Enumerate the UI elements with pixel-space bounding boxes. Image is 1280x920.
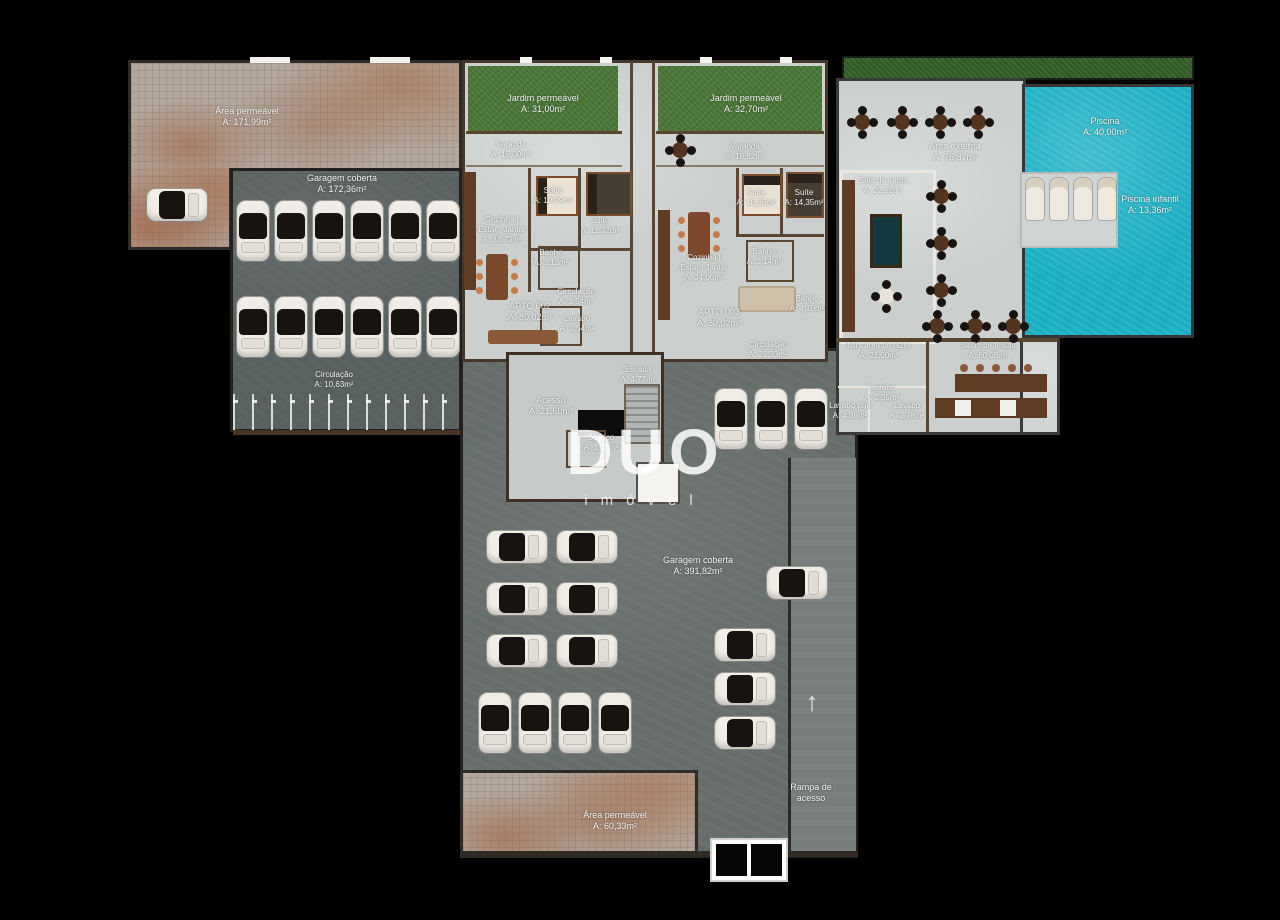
label-suite2-003: Suíte A: 14,35m² xyxy=(784,188,823,208)
bed xyxy=(586,172,632,216)
wall-pillar xyxy=(520,57,532,63)
car xyxy=(556,530,618,564)
wall-pillar xyxy=(600,57,612,63)
bar-stool xyxy=(1024,364,1032,372)
car xyxy=(486,634,548,668)
round-table xyxy=(967,318,983,334)
bar-stool xyxy=(992,364,1000,372)
sink xyxy=(955,400,971,416)
sink xyxy=(1000,400,1016,416)
region-hedge xyxy=(842,56,1194,80)
round-table xyxy=(1005,318,1021,334)
label-jardim-002: Jardim permeável A: 31,00m² xyxy=(507,93,579,116)
pool-lounger xyxy=(1026,178,1044,220)
label-lavabo-002: Lavabo A: 1,54m² xyxy=(560,314,595,334)
label-suite1-002: Suíte A: 10,09m² xyxy=(533,186,572,206)
car xyxy=(556,634,618,668)
label-area-externa: Área externa A: 76,87m² xyxy=(929,141,981,164)
car xyxy=(714,716,776,750)
stall-number-marks xyxy=(233,400,460,403)
round-table xyxy=(878,288,894,304)
label-circulacao-002: Circulação A: 3,54m² xyxy=(557,287,595,307)
car xyxy=(146,188,208,222)
car xyxy=(426,200,460,262)
round-table xyxy=(933,282,949,298)
round-table xyxy=(894,114,910,130)
label-piscina: Piscina A: 40,00m² xyxy=(1083,116,1127,139)
round-table xyxy=(672,142,688,158)
wall-pillar xyxy=(780,57,792,63)
kitchen-counter xyxy=(464,172,476,290)
floor-plan-canvas: ↑ Área permeável A: 171,99m² Garagem cob… xyxy=(0,0,1280,920)
wall-pillar xyxy=(370,57,410,63)
label-suite2-002: Suíte A: 11,32m² xyxy=(581,216,620,236)
round-table xyxy=(933,188,949,204)
round-table xyxy=(970,114,986,130)
car xyxy=(312,296,346,358)
bar-stool xyxy=(1008,364,1016,372)
pool-lounger xyxy=(1074,178,1092,220)
pool-lounger xyxy=(1050,178,1068,220)
car xyxy=(714,672,776,706)
region-area-permeavel-2 xyxy=(460,770,698,858)
car xyxy=(274,296,308,358)
car xyxy=(236,296,270,358)
cabinet-counter xyxy=(935,398,1047,418)
label-servico: Serviço A: 1,35m² xyxy=(584,433,619,453)
region-area-permeavel-1 xyxy=(128,60,462,172)
sofa xyxy=(738,286,796,312)
label-garagem-2: Garagem coberta A: 391,82m² xyxy=(663,555,733,578)
label-banho-002: Banho A: 3,13m² xyxy=(534,248,569,268)
wall xyxy=(652,62,655,360)
label-garagem-1-circulacao: Circulação A: 10,63m² xyxy=(314,370,353,390)
car xyxy=(274,200,308,262)
round-table xyxy=(854,114,870,130)
bar-stool xyxy=(960,364,968,372)
car xyxy=(236,200,270,262)
elevator xyxy=(636,462,680,504)
car xyxy=(388,200,422,262)
wall xyxy=(466,131,622,134)
bar-counter xyxy=(955,374,1047,392)
round-table xyxy=(933,235,949,251)
label-garagem-1: Garagem coberta A: 172,36m² xyxy=(307,173,377,196)
ramp-direction-arrow-icon: ↑ xyxy=(806,687,819,718)
car xyxy=(350,296,384,358)
car xyxy=(598,692,632,754)
car xyxy=(558,692,592,754)
car xyxy=(426,296,460,358)
dining-table xyxy=(688,212,710,258)
car xyxy=(312,200,346,262)
label-apto-002: APTO 002 A: 80,02m² xyxy=(508,301,552,324)
label-mini-area-lazer: Mini área de lazer A: 21,00m² xyxy=(847,341,911,361)
label-acesso: Acesso A: 21,60m² xyxy=(529,395,573,418)
car xyxy=(754,388,788,450)
label-lavabo-1: Lavabo A: 2,05m² xyxy=(865,383,900,403)
label-circulacao-003: Circulação A: 21,33m² xyxy=(748,340,787,360)
label-salao-festas: Salão de festas A: 60,08m² xyxy=(960,341,1015,361)
bar-stool xyxy=(976,364,984,372)
label-varanda-003: Varanda A: 18,62m² xyxy=(725,142,764,162)
wall-parapet xyxy=(466,165,622,167)
car xyxy=(556,582,618,616)
label-lavabo-pne: Lavabo pne A: 4,36m² xyxy=(829,401,871,421)
label-area-permeavel-1: Área permeável A: 171,99m² xyxy=(215,106,279,129)
label-lavabo-2: Lavabo A: 2,78m² xyxy=(890,401,925,421)
round-table xyxy=(929,318,945,334)
wall-pillar xyxy=(250,57,290,63)
kitchen-counter xyxy=(658,210,670,320)
label-jardim-003: Jardim permeável A: 32,70m² xyxy=(710,93,782,116)
car xyxy=(478,692,512,754)
label-cozinha-003: Cozinha | Estar | Jantar A: 34,06m² xyxy=(680,253,727,283)
car xyxy=(486,582,548,616)
label-varanda-002: Varanda A: 15,00m² xyxy=(491,140,530,160)
wall xyxy=(926,338,929,432)
label-sala-de-jogos: Sala de jogos A: 22,92m² xyxy=(859,176,907,196)
wall xyxy=(460,851,858,857)
staircase xyxy=(624,384,660,444)
wall xyxy=(736,234,824,237)
sofa xyxy=(488,330,558,344)
dining-table xyxy=(486,254,508,300)
label-suite1-003: Suíte A: 10,35m² xyxy=(736,188,775,208)
label-rampa: Rampa de acesso xyxy=(790,782,832,805)
car xyxy=(350,200,384,262)
car xyxy=(388,296,422,358)
car xyxy=(486,530,548,564)
car xyxy=(714,388,748,450)
label-banho2-003: Banho A: 4,70m² xyxy=(790,294,825,314)
wall xyxy=(528,168,531,292)
label-area-permeavel-2: Área permeável A: 60,33m² xyxy=(583,810,647,833)
label-apto-003: APTO 003 A: 80,02m² xyxy=(697,307,741,330)
wall-pillar xyxy=(700,57,712,63)
round-table xyxy=(932,114,948,130)
pool-lounger xyxy=(1098,178,1116,220)
label-banho1-003: Banho A: 3,14m² xyxy=(747,247,782,267)
games-room-counter xyxy=(842,180,855,332)
wall xyxy=(578,168,581,250)
pool-table xyxy=(870,214,902,268)
car xyxy=(518,692,552,754)
label-escada: Escada A: 4,77m² xyxy=(621,365,656,385)
label-cozinha-002: Cozinha | Estar | Jantar A: 33,73m² xyxy=(478,215,525,245)
car xyxy=(766,566,828,600)
elevator-shaft-marker xyxy=(710,838,788,882)
label-piscina-infantil: Piscina infantil A: 13,36m² xyxy=(1121,194,1179,217)
wall-parapet xyxy=(656,165,824,167)
car xyxy=(794,388,828,450)
car xyxy=(714,628,776,662)
